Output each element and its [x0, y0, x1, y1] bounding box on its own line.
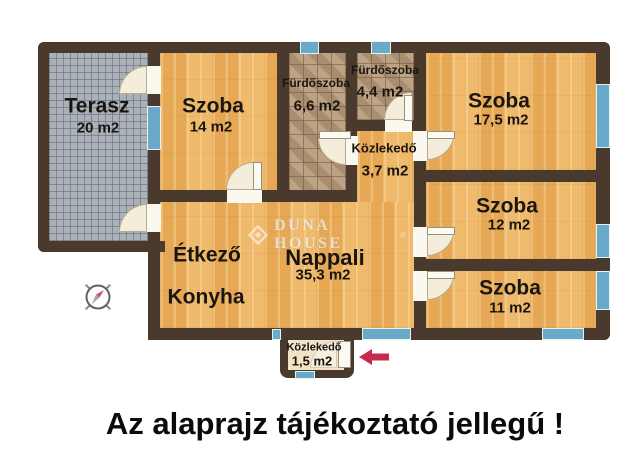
- room-label-etkezo: Étkező: [173, 245, 241, 266]
- door-opening: [413, 227, 427, 257]
- room-label-konyha: Konyha: [167, 287, 244, 308]
- wall: [420, 170, 597, 182]
- door-opening: [147, 66, 161, 94]
- room-area-szoba-175: 17,5 m2: [473, 113, 528, 128]
- window: [596, 224, 610, 258]
- room-label-szoba-14: Szoba: [182, 96, 244, 117]
- room-area-nappali: 35,3 m2: [295, 268, 350, 283]
- room-area-furdoszoba-66: 6,6 m2: [294, 99, 341, 114]
- door-leaf: [253, 162, 262, 190]
- room-area-furdoszoba-44: 4,4 m2: [357, 85, 404, 100]
- window: [300, 41, 319, 54]
- wall: [38, 241, 165, 252]
- window: [371, 41, 391, 54]
- window: [147, 106, 161, 150]
- door-leaf: [427, 227, 455, 235]
- room-area-szoba-14: 14 m2: [190, 120, 233, 135]
- door-opening: [227, 189, 262, 203]
- wall: [38, 42, 49, 252]
- window: [295, 371, 315, 379]
- window: [596, 84, 610, 148]
- entrance-arrow-icon: [359, 348, 389, 366]
- compass-icon: [78, 277, 118, 317]
- room-label-furdoszoba-44: Fürdőszoba: [351, 64, 419, 76]
- room-area-kozlekedo-15: 1,5 m2: [292, 355, 332, 368]
- floor-plan: Terasz 20 m2 Szoba 14 m2 Fürdőszoba 6,6 …: [0, 0, 640, 474]
- room-label-szoba-12: Szoba: [476, 196, 538, 217]
- room-label-kozlekedo-15: Közlekedő: [286, 343, 341, 354]
- room-label-terasz: Terasz: [65, 96, 130, 117]
- caption: Az alaprajz tájékoztató jellegű !: [106, 406, 564, 442]
- wall: [420, 259, 597, 271]
- room-area-szoba-11: 11 m2: [489, 301, 531, 316]
- door-leaf: [319, 131, 351, 139]
- room-furdoszoba-66-floor: [289, 53, 346, 191]
- room-area-kozlekedo-37: 3,7 m2: [362, 164, 409, 179]
- door-opening: [147, 204, 161, 232]
- wall: [38, 42, 609, 53]
- room-label-szoba-175: Szoba: [468, 91, 530, 112]
- window: [272, 329, 281, 340]
- door-leaf: [427, 271, 455, 279]
- room-label-kozlekedo-37: Közlekedő: [351, 142, 416, 155]
- room-area-terasz: 20 m2: [77, 121, 120, 136]
- door-leaf: [404, 95, 413, 121]
- room-label-szoba-11: Szoba: [479, 278, 541, 299]
- window: [362, 328, 411, 340]
- window: [596, 271, 610, 310]
- room-area-szoba-12: 12 m2: [488, 218, 531, 233]
- door-opening: [413, 271, 427, 301]
- room-label-furdoszoba-66: Fürdőszoba: [282, 77, 350, 89]
- door-leaf: [427, 131, 455, 139]
- window: [542, 328, 584, 340]
